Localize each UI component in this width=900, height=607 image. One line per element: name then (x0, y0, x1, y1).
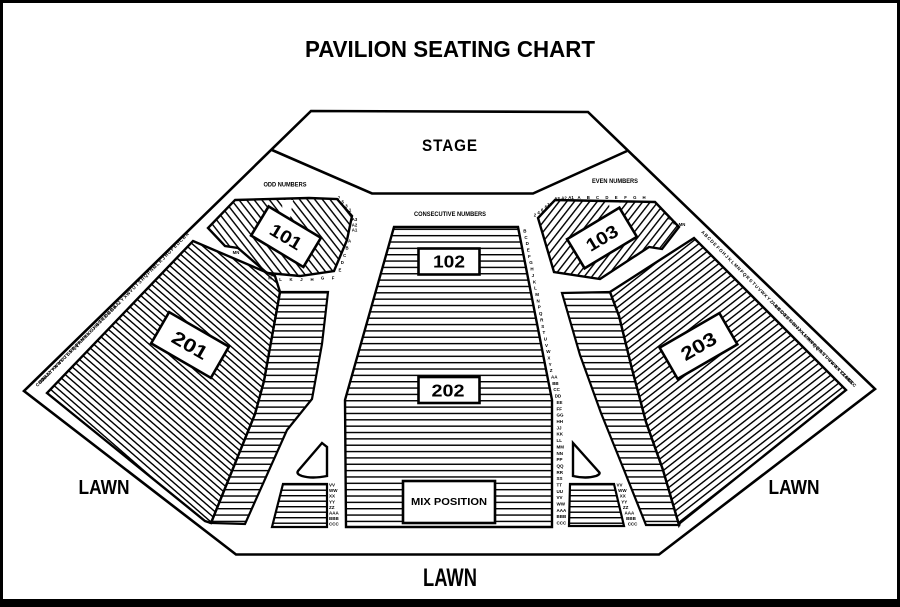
svg-text:STAGE: STAGE (422, 137, 478, 155)
svg-text:AAA: AAA (329, 511, 339, 516)
svg-text:CC: CC (553, 387, 560, 392)
svg-text:YY: YY (621, 499, 627, 504)
svg-text:BBB: BBB (626, 516, 636, 521)
svg-text:MIX POSITION: MIX POSITION (411, 497, 487, 508)
svg-text:CCC: CCC (329, 522, 339, 527)
svg-text:T: T (543, 330, 546, 335)
svg-text:WW: WW (618, 488, 627, 493)
svg-text:E: E (338, 267, 341, 272)
svg-text:VV: VV (329, 483, 335, 488)
svg-text:A3: A3 (352, 217, 358, 222)
svg-text:F: F (332, 276, 335, 281)
svg-text:FF: FF (557, 406, 563, 411)
svg-text:L: L (668, 216, 671, 221)
svg-text:QQ: QQ (557, 463, 565, 468)
svg-text:M: M (673, 220, 677, 225)
svg-text:MN: MN (233, 250, 240, 255)
svg-text:A2: A2 (352, 222, 358, 227)
svg-text:WW: WW (557, 502, 566, 507)
svg-text:KK: KK (557, 432, 564, 437)
svg-text:VV: VV (617, 483, 623, 488)
svg-text:BB: BB (552, 381, 559, 386)
svg-text:S: S (541, 324, 544, 329)
svg-text:H: H (530, 267, 533, 272)
svg-text:ZZ: ZZ (623, 505, 629, 510)
svg-text:H: H (310, 277, 313, 282)
svg-text:U: U (544, 336, 547, 341)
svg-text:CCC: CCC (628, 522, 638, 527)
svg-text:A1: A1 (352, 228, 358, 233)
svg-text:XX: XX (329, 494, 335, 499)
svg-text:NN: NN (557, 451, 564, 456)
svg-text:E: E (527, 248, 530, 253)
svg-text:A: A (577, 195, 580, 200)
svg-text:G: G (529, 260, 533, 265)
svg-text:A3: A3 (554, 196, 560, 201)
svg-text:EVEN NUMBERS: EVEN NUMBERS (592, 178, 638, 185)
svg-text:AAA: AAA (557, 508, 567, 513)
svg-text:EE: EE (557, 400, 563, 405)
svg-text:CONSECUTIVE NUMBERS: CONSECUTIVE NUMBERS (414, 211, 486, 218)
svg-text:BBB: BBB (329, 516, 339, 521)
svg-text:C: C (596, 195, 599, 200)
svg-text:E: E (615, 195, 618, 200)
svg-text:LAWN: LAWN (423, 564, 477, 592)
svg-text:XX: XX (620, 494, 626, 499)
svg-text:10: 10 (547, 202, 552, 207)
svg-text:HH: HH (557, 419, 564, 424)
svg-text:ODD NUMBERS: ODD NUMBERS (264, 182, 307, 189)
svg-text:LL: LL (557, 438, 563, 443)
svg-text:H: H (643, 195, 646, 200)
svg-text:202: 202 (432, 380, 465, 400)
svg-text:F: F (528, 254, 531, 259)
svg-text:LAWN: LAWN (79, 477, 130, 499)
svg-text:D: D (605, 195, 608, 200)
svg-text:A2: A2 (561, 196, 567, 201)
svg-text:L: L (534, 286, 537, 291)
svg-text:Z: Z (550, 368, 553, 373)
svg-text:C: C (343, 253, 346, 258)
svg-text:YY: YY (329, 499, 335, 504)
svg-text:PP: PP (557, 457, 563, 462)
svg-text:MN: MN (679, 222, 686, 227)
svg-text:P: P (538, 305, 541, 310)
svg-text:PAVILION SEATING CHART: PAVILION SEATING CHART (305, 36, 595, 62)
svg-text:ZZ: ZZ (329, 505, 335, 510)
svg-text:F: F (624, 195, 627, 200)
svg-text:B: B (587, 195, 590, 200)
svg-text:AAA: AAA (625, 511, 635, 516)
svg-text:MM: MM (557, 444, 565, 449)
svg-text:N: N (537, 298, 540, 303)
svg-text:A: A (348, 239, 351, 244)
svg-text:DD: DD (555, 394, 562, 399)
svg-text:VV: VV (557, 495, 563, 500)
svg-text:V: V (545, 343, 548, 348)
svg-text:RR: RR (557, 470, 564, 475)
svg-text:102: 102 (433, 252, 465, 272)
svg-text:WW: WW (329, 488, 338, 493)
svg-text:CCC: CCC (557, 521, 567, 526)
svg-text:JJ: JJ (557, 425, 563, 430)
svg-text:AA: AA (551, 375, 558, 380)
svg-text:UU: UU (557, 489, 564, 494)
svg-text:Y: Y (549, 362, 552, 367)
svg-text:LAWN: LAWN (769, 477, 820, 499)
svg-text:Q: Q (539, 311, 543, 316)
svg-text:A1: A1 (568, 195, 574, 200)
svg-text:D: D (341, 260, 344, 265)
svg-text:TT: TT (557, 483, 563, 488)
svg-text:SS: SS (557, 476, 563, 481)
svg-text:W: W (546, 349, 551, 354)
svg-text:BBB: BBB (557, 514, 567, 519)
svg-text:B: B (346, 246, 349, 251)
svg-text:GG: GG (557, 413, 565, 418)
svg-text:X: X (547, 356, 550, 361)
svg-text:L: L (279, 277, 282, 282)
svg-text:M: M (535, 292, 539, 297)
